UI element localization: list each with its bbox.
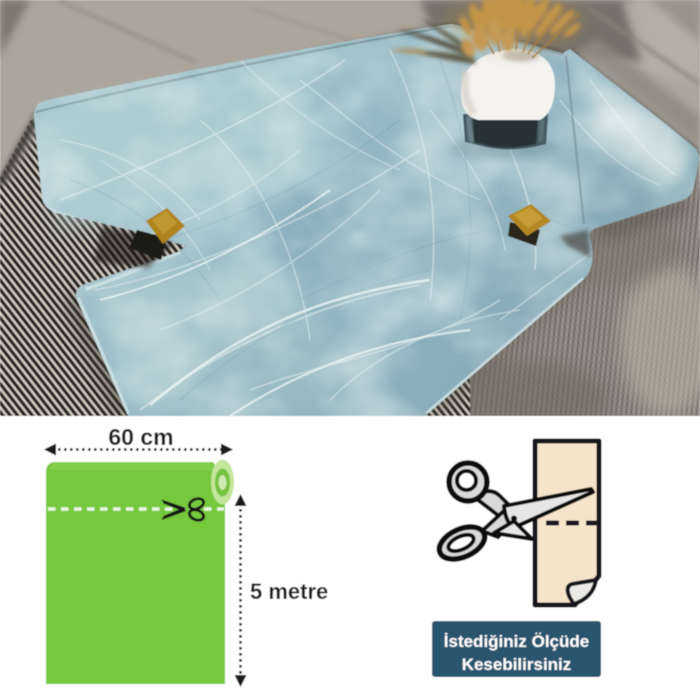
svg-text:Kesebilirsiniz: Kesebilirsiniz — [462, 655, 572, 674]
svg-text:5 metre: 5 metre — [250, 579, 328, 604]
svg-text:60 cm: 60 cm — [108, 424, 173, 450]
svg-text:İstediğiniz Ölçüde: İstediğiniz Ölçüde — [444, 632, 589, 651]
